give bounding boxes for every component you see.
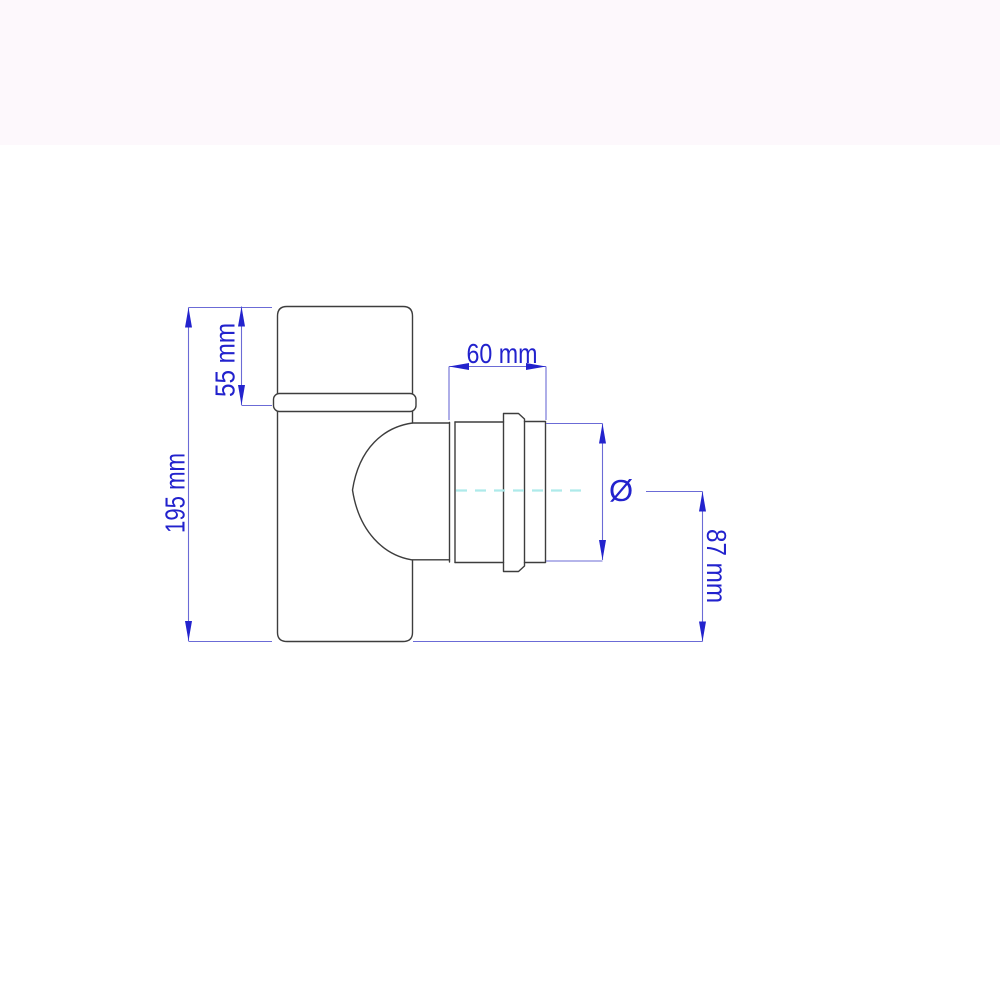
dimension-arrow (699, 492, 706, 512)
dimension-arrow (599, 540, 606, 560)
dimension-arrow (699, 622, 706, 642)
dim-collar-label: 55 mm (210, 323, 241, 397)
dim-55-line (242, 307, 273, 406)
dim-height-label: 195 mm (160, 453, 191, 533)
fitting-drawing: 195 mm 55 mm 60 mm Ø 87 mm (0, 0, 1000, 1000)
dimension-labels: 195 mm 55 mm 60 mm Ø 87 mm (160, 323, 732, 603)
dim-diameter-line (546, 424, 603, 562)
branch-ring (504, 414, 525, 572)
dimension-arrow (599, 424, 606, 444)
branch-spigot (455, 422, 546, 563)
dim-spigot-length-label: 60 mm (467, 338, 538, 369)
dimension-arrow (185, 308, 192, 328)
dim-87-line (413, 492, 703, 642)
dim-offset-label: 87 mm (701, 529, 732, 603)
collar-band (274, 394, 417, 412)
body-lower (278, 412, 413, 642)
body-top-cap (278, 307, 413, 394)
branch-cone (353, 423, 450, 560)
branch-joint-lines (450, 422, 456, 563)
drawing-canvas: 195 mm 55 mm 60 mm Ø 87 mm (0, 0, 1000, 1000)
dimension-arrow (185, 621, 192, 641)
diameter-symbol: Ø (609, 473, 633, 508)
dim-60-line (449, 367, 546, 421)
